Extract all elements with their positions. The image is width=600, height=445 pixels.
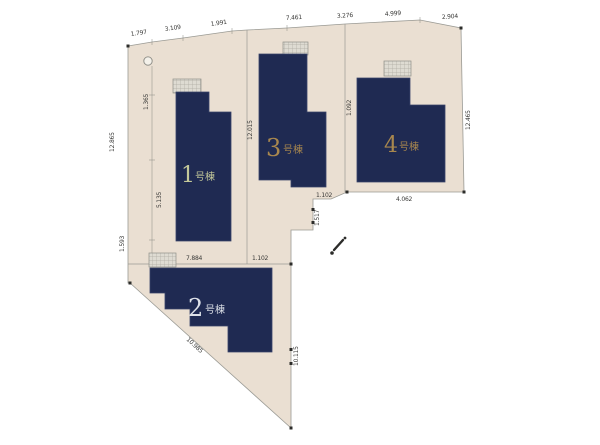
dim-inner-left-upper: 1.365 <box>143 93 150 110</box>
dim-lot3-bottom: 1.102 <box>316 192 333 199</box>
porch-hatch-building-3 <box>283 42 308 55</box>
road-marking-icon <box>330 237 346 255</box>
survey-marker <box>290 263 293 266</box>
dim-top-2: 3.109 <box>164 24 181 33</box>
dim-right-edge: 12.465 <box>465 110 472 130</box>
dim-inner-left: 5.135 <box>156 191 163 208</box>
building-4-number: 4 <box>384 133 398 158</box>
building-3-suffix: 号棟 <box>283 143 303 156</box>
survey-marker <box>460 27 463 30</box>
utility-pole-icon <box>144 57 152 65</box>
survey-marker <box>346 191 349 194</box>
survey-marker <box>290 427 293 430</box>
dim-top-4: 7.461 <box>286 14 303 22</box>
building-1-number: 1 <box>181 163 195 188</box>
building-1-suffix: 号棟 <box>195 170 215 183</box>
building-3-number: 3 <box>266 134 281 162</box>
dim-divider-1-3: 12.015 <box>247 120 254 140</box>
dim-top-7: 2.904 <box>442 13 459 21</box>
building-4-suffix: 号棟 <box>399 140 419 153</box>
site-plan-svg: 1 号棟 2 号棟 3 号棟 4 号棟 1.797 3.109 1.991 7.… <box>0 0 600 445</box>
dim-top-5: 3.276 <box>337 12 354 20</box>
dim-divider-3-4: 1.092 <box>346 99 353 116</box>
dim-left-outer: 12.865 <box>109 132 116 152</box>
dim-lot2-top-2: 1.102 <box>252 255 269 262</box>
dim-top-1: 1.797 <box>130 29 147 38</box>
dim-top-6: 4.999 <box>385 10 402 18</box>
survey-marker <box>463 191 466 194</box>
survey-marker <box>129 282 132 285</box>
dim-top-3: 1.991 <box>210 19 227 28</box>
site-plan-canvas: 1 号棟 2 号棟 3 号棟 4 号棟 1.797 3.109 1.991 7.… <box>0 0 600 445</box>
dim-left-lower: 1.593 <box>119 235 126 252</box>
porch-hatch-building-4 <box>384 61 411 76</box>
dim-lot4-bottom: 4.062 <box>396 196 413 203</box>
dim-lot2-top-1: 7.884 <box>186 255 203 262</box>
building-2-number: 2 <box>188 294 203 322</box>
survey-marker <box>127 45 130 48</box>
building-2-suffix: 号棟 <box>205 303 225 316</box>
porch-hatch-building-2 <box>149 253 176 267</box>
porch-hatch-building-1 <box>173 79 201 93</box>
dim-lot3-bottom-v: 1.517 <box>314 209 321 226</box>
dim-lot2-right: 10.115 <box>293 346 300 366</box>
